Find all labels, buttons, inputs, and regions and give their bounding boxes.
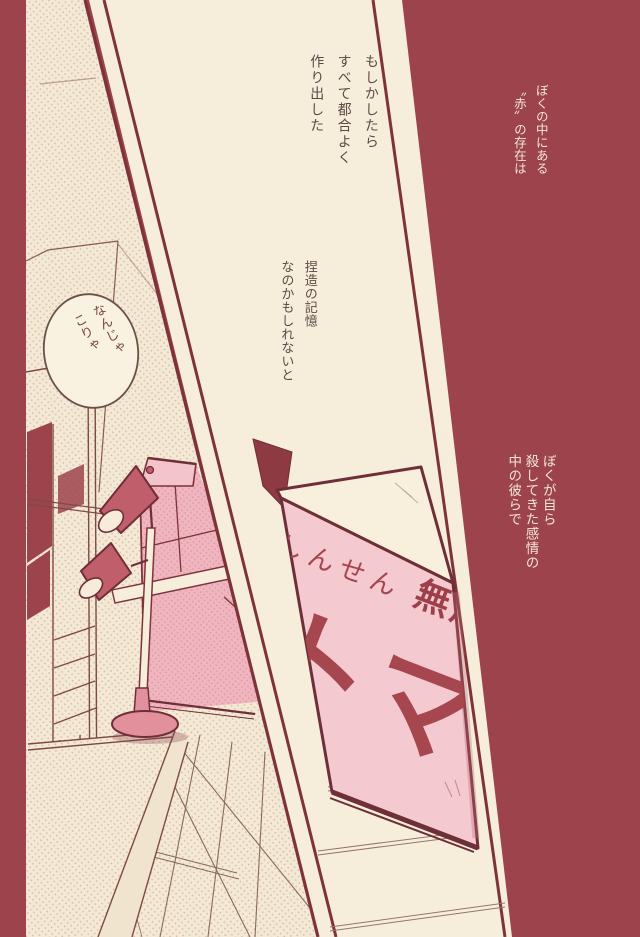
- narration-line: なのかもしれないと: [274, 260, 297, 390]
- narration-line: すべて都合よく: [329, 54, 356, 174]
- narration-middle-center: 捏造の記憶 なのかもしれないと: [274, 260, 321, 390]
- narration-middle-right: ぼくが自ら 殺してきた感情の 中の彼らで: [504, 454, 556, 586]
- narration-line: 中の彼らで: [504, 454, 521, 586]
- narration-line: 捏造の記憶: [297, 260, 320, 390]
- narration-line: ぼくが自ら: [539, 454, 556, 586]
- narration-top-center: もしかしたら すべて都合よく 作り出した: [302, 54, 384, 174]
- narration-line: 作り出した: [302, 54, 329, 174]
- manga-page: しんせん無農 トマ もしかしたら すべて都合よく 作り出した ぼくの中にある 〝…: [0, 0, 640, 937]
- narration-line: 〝赤〟の存在は: [508, 84, 530, 184]
- narration-line: もしかしたら: [357, 54, 384, 174]
- narration-line: ぼくの中にある: [530, 84, 552, 184]
- narration-top-right: ぼくの中にある 〝赤〟の存在は: [508, 84, 552, 184]
- narration-line: 殺してきた感情の: [521, 454, 538, 586]
